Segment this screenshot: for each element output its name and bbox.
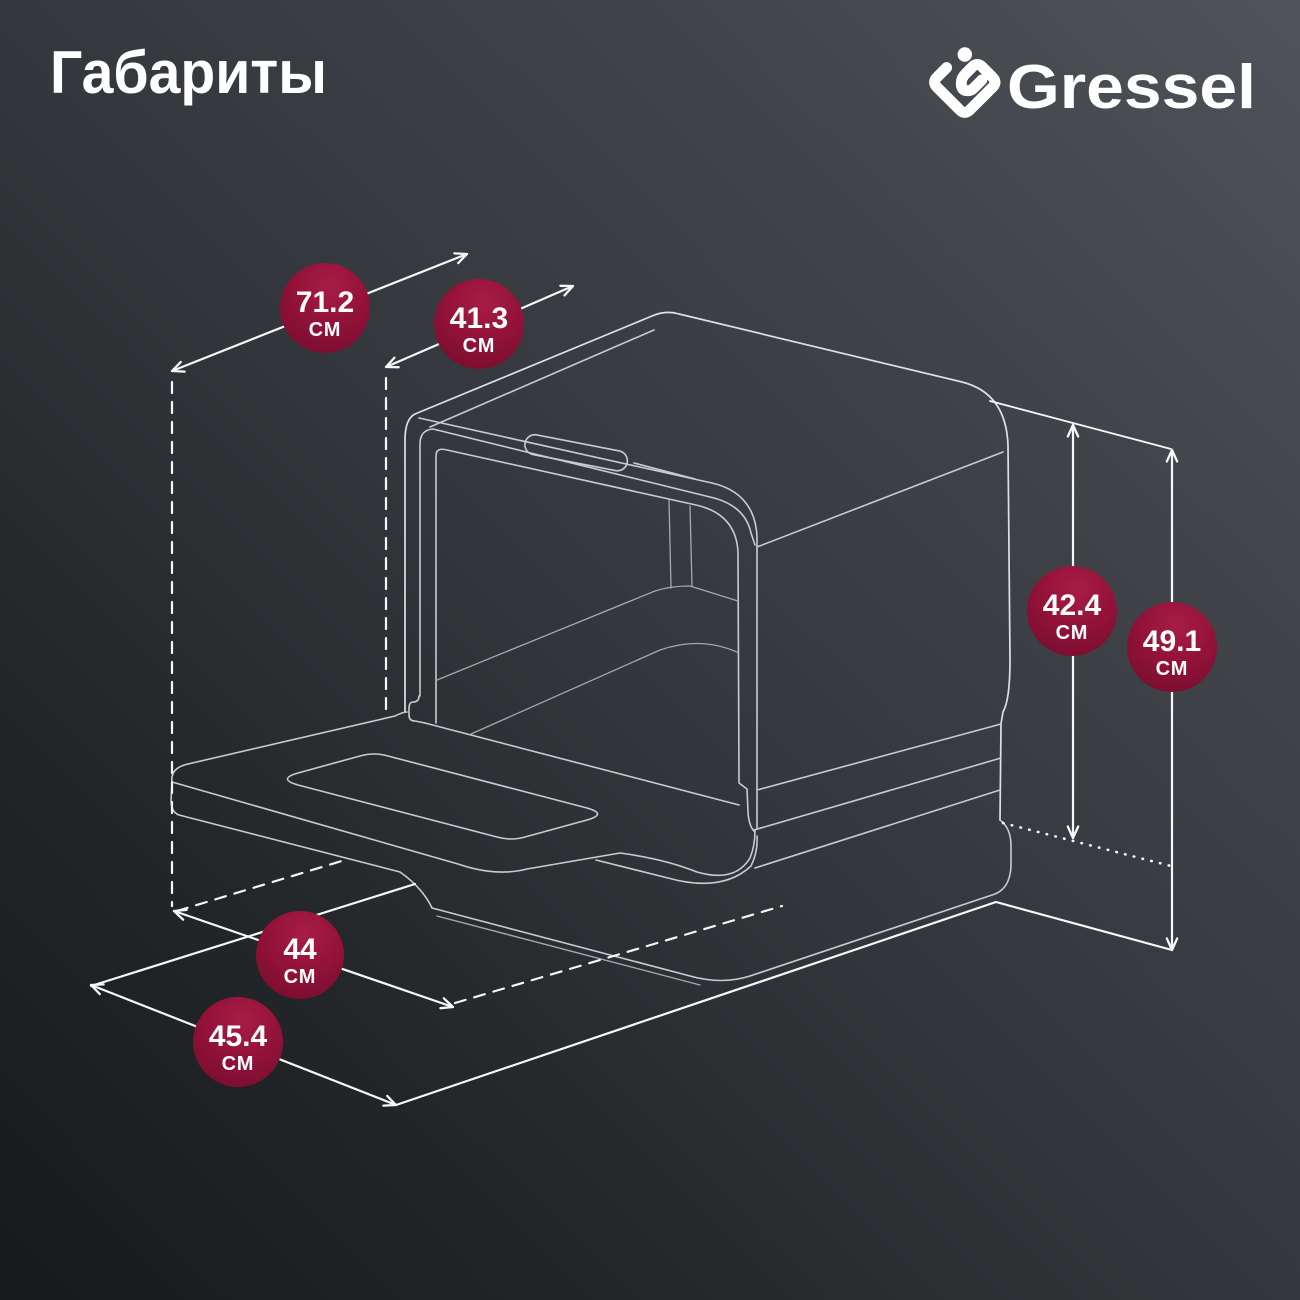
svg-text:СМ: СМ: [222, 1053, 255, 1075]
svg-text:Габариты: Габариты: [50, 39, 327, 106]
svg-text:44: 44: [283, 933, 317, 966]
svg-text:СМ: СМ: [284, 966, 317, 988]
svg-text:СМ: СМ: [1056, 622, 1089, 644]
svg-text:Gressel: Gressel: [1007, 53, 1256, 122]
svg-text:41.3: 41.3: [450, 302, 508, 335]
svg-text:42.4: 42.4: [1043, 589, 1102, 622]
svg-text:СМ: СМ: [309, 319, 342, 341]
svg-text:СМ: СМ: [463, 335, 496, 357]
svg-text:49.1: 49.1: [1143, 625, 1201, 658]
svg-text:45.4: 45.4: [209, 1020, 268, 1053]
svg-text:СМ: СМ: [1156, 658, 1189, 680]
svg-text:71.2: 71.2: [296, 286, 354, 319]
